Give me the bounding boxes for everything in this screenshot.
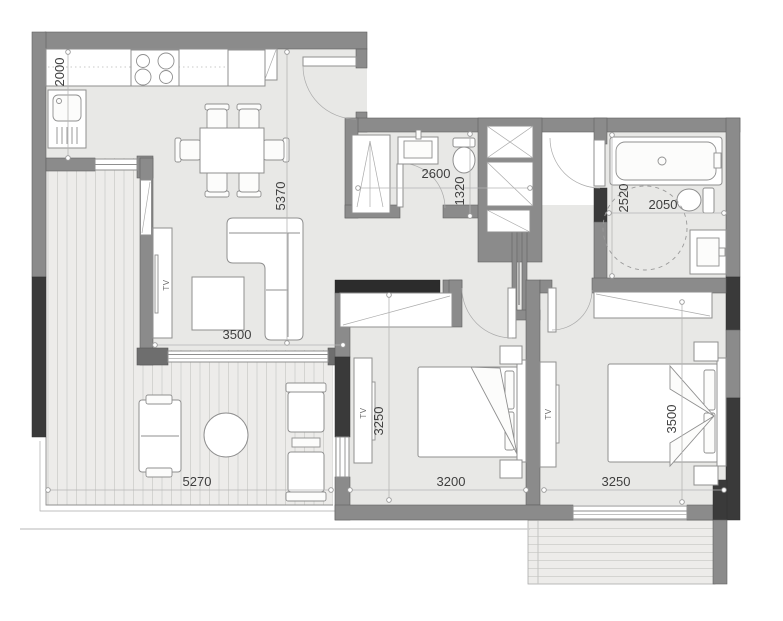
dim-label: 2520 (616, 184, 631, 213)
wall-bath-top (356, 118, 740, 132)
kitchen-hob (131, 50, 179, 86)
dim-label: 2000 (52, 58, 67, 87)
tv-unit-living: TV (153, 228, 172, 338)
closet (487, 162, 533, 206)
wall-right-dark-a (726, 277, 740, 330)
wall-bedrooms-bottom-a (335, 505, 573, 520)
entrance-door-leaf (303, 57, 356, 66)
shaft-column (487, 126, 533, 232)
outdoor-armchair (286, 383, 326, 432)
wall-entry-east-a (356, 49, 367, 68)
bathroom2-door-swing (550, 138, 600, 188)
outdoor-armchair (286, 452, 326, 501)
toilet (453, 138, 475, 173)
kitchen-sink (48, 90, 86, 148)
wall-right-dark-b (726, 398, 740, 520)
tv-screen (556, 385, 559, 443)
tv-label: TV (162, 279, 171, 290)
coffee-table (192, 277, 244, 330)
dining-chair (237, 171, 261, 197)
outdoor-side-table (292, 438, 320, 447)
floor-plan-drawing: TV (0, 0, 783, 621)
wall-bath2-left-dark (594, 188, 607, 222)
wall-bedroom1-top-dark (335, 280, 440, 293)
window-entry-niche (265, 49, 277, 80)
dining-table (200, 128, 264, 173)
bathroom1-door-leaf (397, 164, 403, 207)
dim-label: 2050 (649, 197, 678, 212)
tv-unit-bedroom2: TV (540, 362, 559, 467)
tv-screen (155, 255, 158, 313)
wardrobe-bedroom1 (340, 293, 452, 327)
wall-top (45, 32, 367, 49)
window-living-terrace-panel (141, 180, 152, 235)
wall-terrace2-right (713, 520, 727, 584)
wall-bedroom-divider (526, 280, 540, 505)
toilet-2 (677, 188, 714, 213)
nightstand (500, 460, 522, 478)
dim-label: 2600 (422, 166, 451, 181)
wall-right-b (726, 330, 740, 398)
bedroom1-door-leaf (508, 288, 516, 338)
dim-label: 5370 (273, 182, 288, 211)
bathroom2-door-leaf (594, 140, 605, 186)
wall-right-a (726, 118, 740, 277)
nightstand (500, 346, 522, 364)
wall-left-dark-glazing (32, 277, 46, 437)
wall-bedroom2-top (592, 278, 726, 293)
wall-bedroom1-left-dark (335, 357, 350, 437)
floor-terrace-bedroom (528, 520, 715, 584)
dim-label: 3500 (223, 327, 252, 342)
bed-1 (418, 360, 526, 462)
window-kitchen-terrace (95, 159, 137, 170)
nightstand (694, 466, 718, 485)
dining-chair (263, 138, 289, 162)
headboard (717, 358, 726, 466)
outdoor-sofa (139, 395, 181, 477)
dim-label: 3200 (437, 474, 466, 489)
dining-chair (205, 104, 229, 130)
window-bedroom1-terrace (336, 437, 349, 477)
floor-plan-canvas: TV (0, 0, 783, 621)
wall-left-gray (32, 32, 46, 277)
duct-shaft (487, 126, 533, 158)
washbasin-2 (690, 230, 726, 274)
wardrobe-bedroom2 (594, 292, 712, 318)
tv-label: TV (544, 408, 553, 419)
wall-corner-dark-a (137, 348, 168, 365)
shower (352, 135, 390, 213)
dim-label: 3250 (602, 474, 631, 489)
dim-label: 3250 (371, 407, 386, 436)
mattress (608, 364, 718, 462)
dining-chair (237, 104, 261, 130)
pillow (704, 370, 715, 410)
wall-kitchen-terrace (46, 158, 95, 171)
dim-label: 3500 (664, 405, 679, 434)
floor-terrace-upper (46, 158, 153, 365)
wall-bedrooms-bottom-b (687, 505, 715, 520)
outdoor-table (204, 413, 248, 457)
dim-label: 5270 (183, 474, 212, 489)
bedroom2-door-leaf (548, 288, 556, 332)
kitchen-cabinet (228, 50, 265, 86)
headboard (517, 360, 526, 462)
dining-chair (175, 138, 201, 162)
nightstand (694, 342, 718, 361)
bathroom2-door (550, 138, 605, 188)
wall-bottom-right-dark (713, 480, 727, 520)
dim-label: 1320 (452, 177, 467, 206)
dining-chair (205, 171, 229, 197)
window-bedroom2-bottom (573, 506, 687, 519)
window-living-sliding-door (168, 351, 328, 362)
vent-closet (487, 210, 530, 232)
bathtub (610, 137, 722, 185)
tv-label: TV (359, 407, 368, 418)
